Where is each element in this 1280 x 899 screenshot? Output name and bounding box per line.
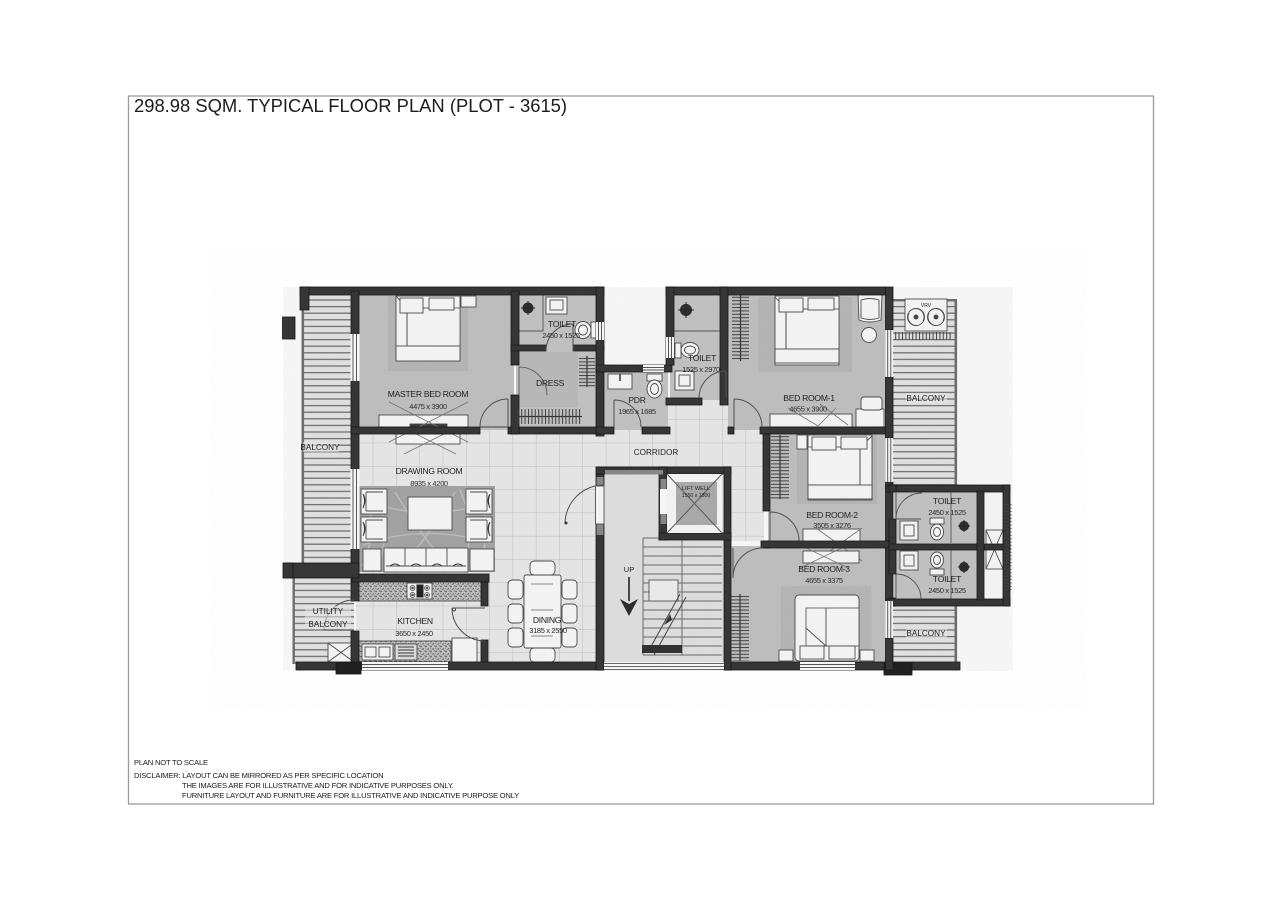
- svg-text:PLAN NOT TO SCALE: PLAN NOT TO SCALE: [134, 758, 208, 767]
- svg-text:298.98 SQM. TYPICAL FLOOR PLAN: 298.98 SQM. TYPICAL FLOOR PLAN (PLOT - 3…: [134, 95, 567, 116]
- svg-text:FURNITURE LAYOUT AND FURNITURE: FURNITURE LAYOUT AND FURNITURE ARE FOR I…: [182, 791, 519, 800]
- svg-text:THE IMAGES ARE FOR ILLUSTRATIV: THE IMAGES ARE FOR ILLUSTRATIVE AND FOR …: [182, 781, 454, 790]
- svg-text:DISCLAIMER: LAYOUT CAN BE MIRR: DISCLAIMER: LAYOUT CAN BE MIRRORED AS PE…: [134, 771, 383, 780]
